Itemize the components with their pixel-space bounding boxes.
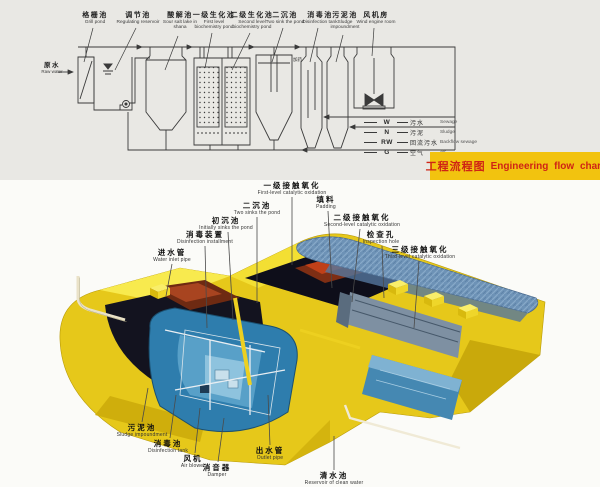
regulating-tank-shape <box>94 57 150 110</box>
label-secondary-settling: 二沉池 Two sinks the pond <box>234 202 280 217</box>
chart-title-banner: 工程流程图 Engineering flow chart <box>430 152 600 180</box>
chart-title-en: Engineering flow chart <box>491 161 600 172</box>
legend-dash <box>364 122 377 123</box>
legend-dash <box>397 122 408 123</box>
legend-dash <box>397 152 408 153</box>
disinfection-tank-shape <box>301 47 322 148</box>
label-inspection-hole: 检查孔 Inspection hole <box>363 231 400 246</box>
legend-dash <box>364 142 377 143</box>
legend-row-backflow: RW 回流污水 Backflow sewage <box>362 138 477 148</box>
biochemical-tanks-shape <box>194 47 250 150</box>
acid-tank-shape <box>146 47 186 150</box>
vessel-label-regulating: 调节池 Regulating reservoir <box>117 12 160 25</box>
cutaway-illustration <box>0 180 600 487</box>
cutaway-illustration-panel: 一级接触氧化 First-level catalytic oxidation 填… <box>0 180 600 487</box>
blower-room-shape <box>354 47 394 109</box>
label-sludge-pond: 污泥池 Sludge impoundment <box>117 424 168 439</box>
label-damper: 消音器 Damper <box>203 464 232 479</box>
settling-tank-shape <box>256 47 292 150</box>
label-disinfection-pond: 消毒池 Disinfection tank <box>148 440 188 455</box>
label-clean-water-pond: 清水池 Reservoir of clean water <box>305 472 364 487</box>
legend-dash <box>397 142 408 143</box>
chart-title-zh: 工程流程图 <box>426 158 486 174</box>
top-leader-lines <box>84 28 374 70</box>
dosing-label: 加药 <box>293 57 302 63</box>
label-padding: 填料 Padding <box>316 196 336 211</box>
label-disinfection-device: 消毒装置 Disinfection installment <box>177 231 233 246</box>
legend-row-sludge: N 污泥 Sludge <box>362 128 477 138</box>
raw-water-label: 原水 Raw water <box>41 62 62 75</box>
vessel-label-settling: 二沉池 Two sink the pond <box>266 12 305 25</box>
flow-chart-panel: 格栅池 Grill pond 调节池 Regulating reservoir … <box>0 0 600 180</box>
sludge-tank-shape <box>327 47 348 148</box>
label-second-level-oxidation: 二级接触氧化 Second-level catalytic oxidation <box>324 214 400 229</box>
legend-dash <box>397 132 408 133</box>
vessel-label-grid-pond: 格栅池 Grill pond <box>82 12 108 25</box>
legend-dash <box>364 132 377 133</box>
label-third-level-oxidation: 三级接触氧化 Third-level catalytic oxidation <box>385 246 455 261</box>
label-inlet-pipe: 进水管 Water inlet pipe <box>153 249 191 264</box>
legend-dash <box>364 152 377 153</box>
label-outlet-pipe: 出水管 Outlet pipe <box>256 447 285 462</box>
vessel-label-blower-room: 风机房 Wind engine room <box>357 12 396 25</box>
legend-row-sewage: W 污水 Sewage <box>362 118 477 128</box>
label-air-blower: 风机 Air blower <box>181 455 205 470</box>
